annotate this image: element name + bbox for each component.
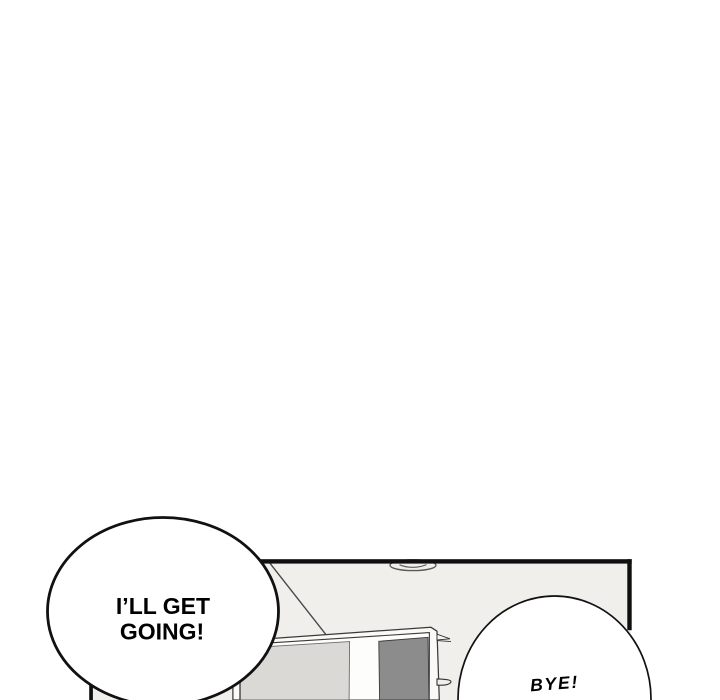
svg-text:I’LL GET: I’LL GET (116, 593, 210, 619)
svg-text:GOING!: GOING! (120, 619, 204, 645)
svg-text:BYE!: BYE! (529, 672, 579, 696)
